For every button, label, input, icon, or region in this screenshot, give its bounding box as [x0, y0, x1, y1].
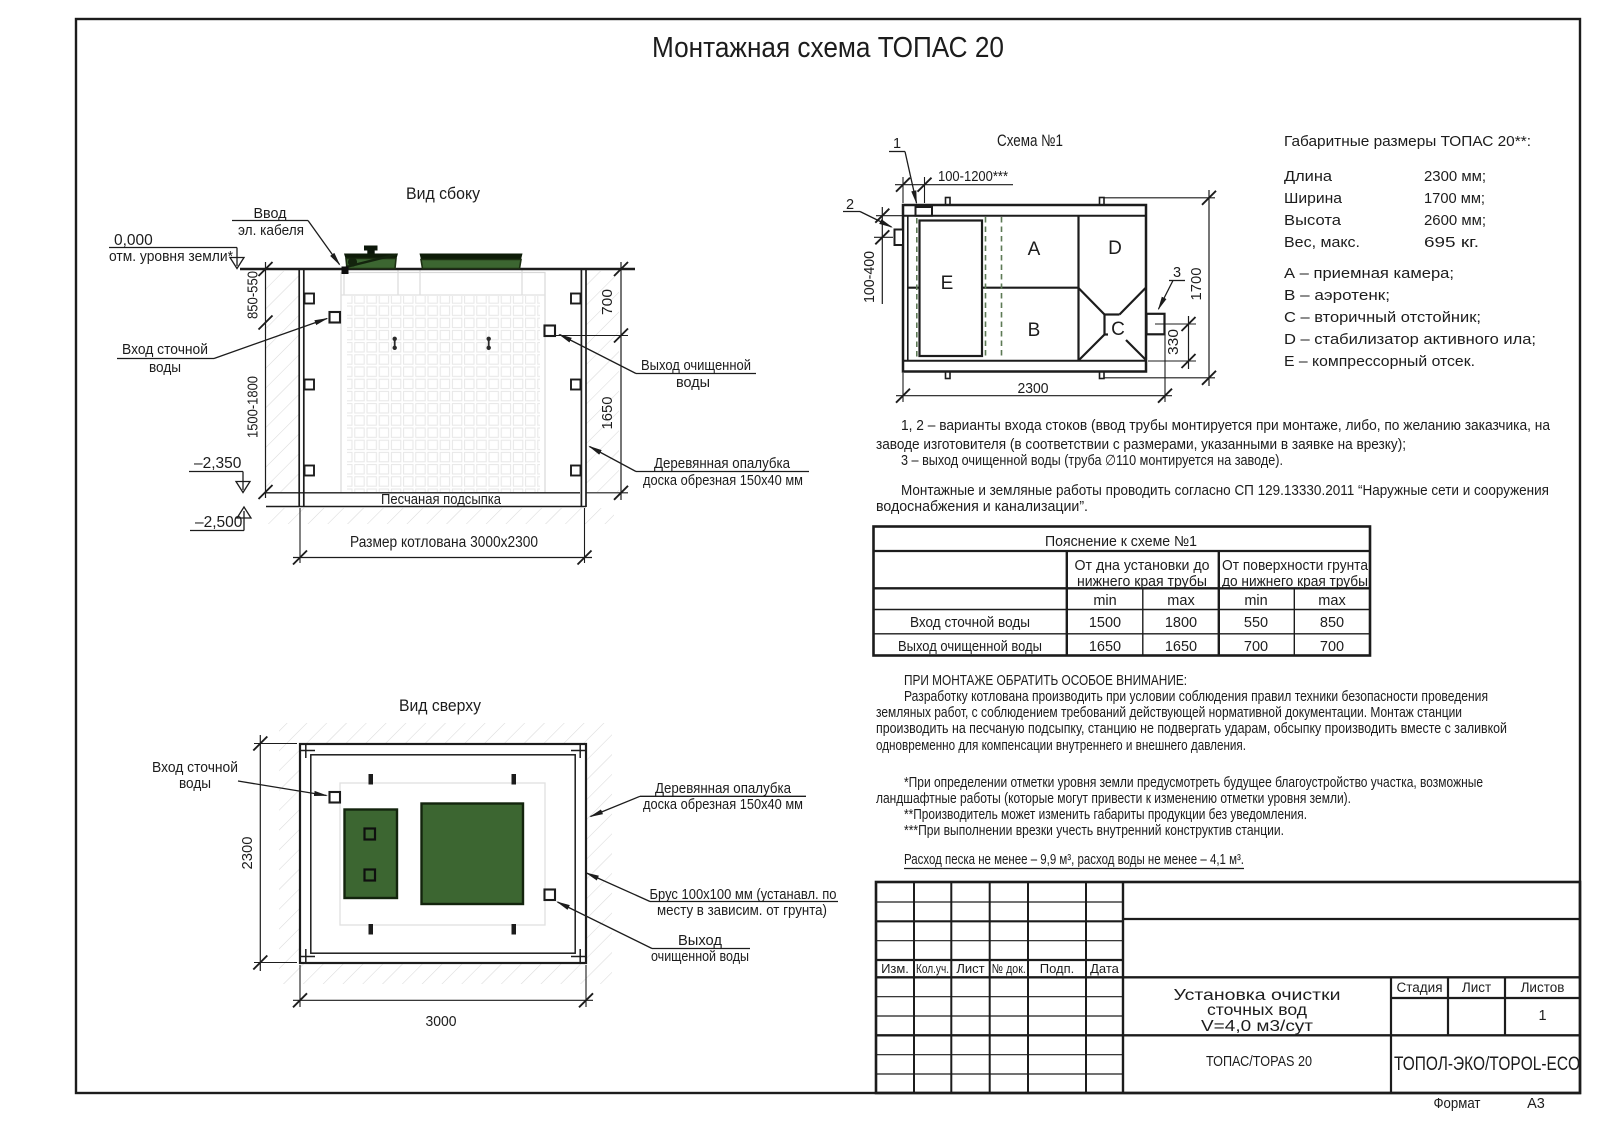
svg-text:отм. уровня земли*: отм. уровня земли*	[109, 249, 233, 265]
svg-text:водоснабжения и канализации”.: водоснабжения и канализации”.	[876, 499, 1088, 515]
svg-text:Вход сточной воды: Вход сточной воды	[910, 615, 1030, 631]
svg-text:C: C	[1111, 319, 1125, 340]
svg-text:Ввод: Ввод	[254, 206, 288, 222]
svg-text:эл. кабеля: эл. кабеля	[238, 223, 304, 239]
svg-text:ТОПОЛ-ЭКО/TOPOL-ECO: ТОПОЛ-ЭКО/TOPOL-ECO	[1394, 1053, 1580, 1075]
svg-text:Вид сверху: Вид сверху	[399, 697, 482, 715]
svg-text:С – вторичный отстойник;: С – вторичный отстойник;	[1284, 310, 1481, 326]
svg-text:Пояснение к схеме №1: Пояснение к схеме №1	[1045, 534, 1197, 550]
svg-text:A: A	[1028, 239, 1041, 260]
svg-text:ПРИ МОНТАЖЕ ОБРАТИТЬ ОСОБОЕ ВН: ПРИ МОНТАЖЕ ОБРАТИТЬ ОСОБОЕ ВНИМАНИЕ:	[904, 673, 1187, 689]
svg-text:Лист: Лист	[1462, 980, 1491, 995]
svg-text:3 – выход очищенной воды (труб: 3 – выход очищенной воды (труба ∅110 мон…	[901, 453, 1283, 469]
svg-text:*При определении отметки уровн: *При определении отметки уровня земли пр…	[904, 775, 1483, 791]
svg-text:D – стабилизатор активного ила: D – стабилизатор активного ила;	[1284, 332, 1536, 348]
svg-text:№ док.: № док.	[992, 961, 1026, 976]
svg-text:–2,350: –2,350	[194, 455, 242, 472]
svg-text:Деревянная опалубка: Деревянная опалубка	[655, 781, 792, 797]
svg-text:E: E	[941, 273, 954, 294]
svg-text:850: 850	[1320, 615, 1344, 631]
svg-text:ТОПАС/TOPAS 20: ТОПАС/TOPAS 20	[1206, 1054, 1312, 1070]
svg-text:воды: воды	[149, 360, 181, 376]
svg-text:Ширина: Ширина	[1284, 191, 1343, 207]
svg-text:–2,500: –2,500	[195, 514, 243, 531]
svg-text:Схема №1: Схема №1	[997, 132, 1063, 150]
svg-text:0,000: 0,000	[114, 232, 153, 249]
svg-text:1500-1800: 1500-1800	[246, 376, 262, 438]
svg-text:сточных вод: сточных вод	[1207, 1002, 1308, 1019]
svg-text:1700 мм;: 1700 мм;	[1424, 191, 1485, 207]
svg-text:От поверхности грунта: От поверхности грунта	[1222, 558, 1369, 574]
svg-text:Дата: Дата	[1090, 961, 1120, 976]
svg-text:Размер котлована 3000х2300: Размер котлована 3000х2300	[350, 534, 538, 551]
svg-text:min: min	[1093, 593, 1116, 609]
svg-text:Высота: Высота	[1284, 213, 1342, 229]
svg-text:Выход: Выход	[678, 933, 723, 949]
svg-text:Стадия: Стадия	[1396, 980, 1442, 995]
svg-text:От дна установки до: От дна установки до	[1075, 558, 1210, 574]
svg-text:B: B	[1028, 320, 1041, 341]
svg-text:нижнего края трубы: нижнего края трубы	[1077, 574, 1207, 590]
svg-text:2600 мм;: 2600 мм;	[1424, 213, 1486, 229]
svg-text:695 кг.: 695 кг.	[1424, 235, 1479, 251]
svg-text:одновременно для компенсации в: одновременно для компенсации внутреннего…	[876, 738, 1246, 754]
svg-text:D: D	[1108, 238, 1122, 259]
svg-text:***При выполнении врезки учест: ***При выполнении врезки учесть внутренн…	[904, 823, 1284, 839]
svg-text:Деревянная опалубка: Деревянная опалубка	[654, 456, 791, 472]
svg-text:очищенной воды: очищенной воды	[651, 949, 749, 965]
svg-text:100-1200***: 100-1200***	[938, 169, 1008, 185]
svg-text:Формат: Формат	[1434, 1096, 1481, 1112]
svg-text:V=4,0 м3/сут: V=4,0 м3/сут	[1201, 1018, 1314, 1035]
svg-text:Выход очищенной воды: Выход очищенной воды	[898, 639, 1042, 655]
svg-text:ландшафтные работы (которые мо: ландшафтные работы (которые могут привес…	[876, 791, 1351, 807]
svg-text:А3: А3	[1527, 1096, 1545, 1112]
svg-text:Вход сточной: Вход сточной	[152, 760, 238, 776]
svg-text:3000: 3000	[426, 1013, 457, 1030]
svg-text:Выход очищенной: Выход очищенной	[641, 358, 751, 374]
svg-text:100-400: 100-400	[862, 251, 878, 303]
svg-text:Монтажная схема ТОПАС 20: Монтажная схема ТОПАС 20	[652, 32, 1004, 64]
svg-text:доска обрезная 150х40 мм: доска обрезная 150х40 мм	[643, 797, 803, 813]
svg-text:Брус 100х100 мм (устанавл. по: Брус 100х100 мм (устанавл. по	[650, 887, 837, 903]
svg-text:min: min	[1244, 593, 1267, 609]
svg-text:Лист: Лист	[956, 961, 984, 976]
svg-text:Вес, макс.: Вес, макс.	[1284, 235, 1360, 251]
svg-text:Листов: Листов	[1521, 980, 1565, 995]
svg-text:Изм.: Изм.	[881, 961, 909, 976]
svg-text:700: 700	[1244, 639, 1268, 655]
svg-text:1650: 1650	[1165, 639, 1197, 655]
svg-text:1: 1	[1538, 1008, 1546, 1024]
svg-text:max: max	[1318, 593, 1346, 609]
svg-text:Вид сбоку: Вид сбоку	[406, 185, 481, 203]
svg-text:**Производитель может изменить: **Производитель может изменить габариты …	[904, 807, 1307, 823]
svg-text:2: 2	[846, 197, 854, 213]
svg-text:1500: 1500	[1089, 615, 1121, 631]
svg-text:Песчаная подсыпка: Песчаная подсыпка	[381, 491, 502, 508]
svg-text:700: 700	[1320, 639, 1344, 655]
svg-text:850-550: 850-550	[246, 271, 262, 319]
svg-text:земляных работ, с соблюдением: земляных работ, с соблюдением требований…	[876, 705, 1462, 721]
svg-text:2300: 2300	[1018, 380, 1049, 397]
svg-text:1650: 1650	[600, 397, 616, 430]
svg-text:700: 700	[600, 289, 616, 315]
svg-text:А – приемная камера;: А – приемная камера;	[1284, 266, 1454, 282]
svg-text:max: max	[1167, 593, 1195, 609]
svg-text:1: 1	[893, 136, 901, 152]
svg-text:1700: 1700	[1189, 268, 1205, 301]
svg-text:воды: воды	[179, 776, 211, 792]
svg-text:доска обрезная 150х40 мм: доска обрезная 150х40 мм	[643, 473, 803, 489]
svg-text:1800: 1800	[1165, 615, 1197, 631]
svg-text:месту в зависим. от грунта): месту в зависим. от грунта)	[657, 903, 827, 919]
svg-text:Разработку котлована производи: Разработку котлована производить при усл…	[904, 689, 1488, 705]
svg-text:2300 мм;: 2300 мм;	[1424, 169, 1486, 185]
svg-text:Расход песка не менее – 9,9 м³: Расход песка не менее – 9,9 м³, расход в…	[904, 852, 1244, 868]
svg-text:Е – компрессорный отсек.: Е – компрессорный отсек.	[1284, 354, 1475, 370]
svg-text:Подп.: Подп.	[1040, 961, 1075, 976]
svg-text:воды: воды	[676, 375, 710, 391]
svg-text:550: 550	[1244, 615, 1268, 631]
svg-text:1, 2 – варианты входа стоков: 1, 2 – варианты входа стоков (ввод трубы…	[901, 418, 1551, 434]
svg-text:Монтажные и земляные работы пр: Монтажные и земляные работы проводить со…	[901, 483, 1549, 499]
svg-text:2300: 2300	[240, 837, 256, 870]
svg-text:заводе изготовителя (в соответ: заводе изготовителя (в соответствии с ра…	[876, 437, 1406, 453]
svg-text:производить на песчаную подсып: производить на песчаную подсыпку, станци…	[876, 721, 1507, 737]
svg-text:до нижнего края трубы: до нижнего края трубы	[1222, 574, 1368, 590]
svg-text:Вход сточной: Вход сточной	[122, 342, 208, 358]
svg-text:330: 330	[1166, 329, 1182, 355]
svg-text:1650: 1650	[1089, 639, 1121, 655]
svg-text:3: 3	[1173, 265, 1181, 281]
svg-text:Длина: Длина	[1284, 169, 1333, 185]
svg-text:Габаритные размеры ТОПАС 20**:: Габаритные размеры ТОПАС 20**:	[1284, 134, 1531, 150]
svg-text:В – аэротенк;: В – аэротенк;	[1284, 288, 1390, 304]
svg-text:Кол.уч.: Кол.уч.	[916, 961, 949, 976]
